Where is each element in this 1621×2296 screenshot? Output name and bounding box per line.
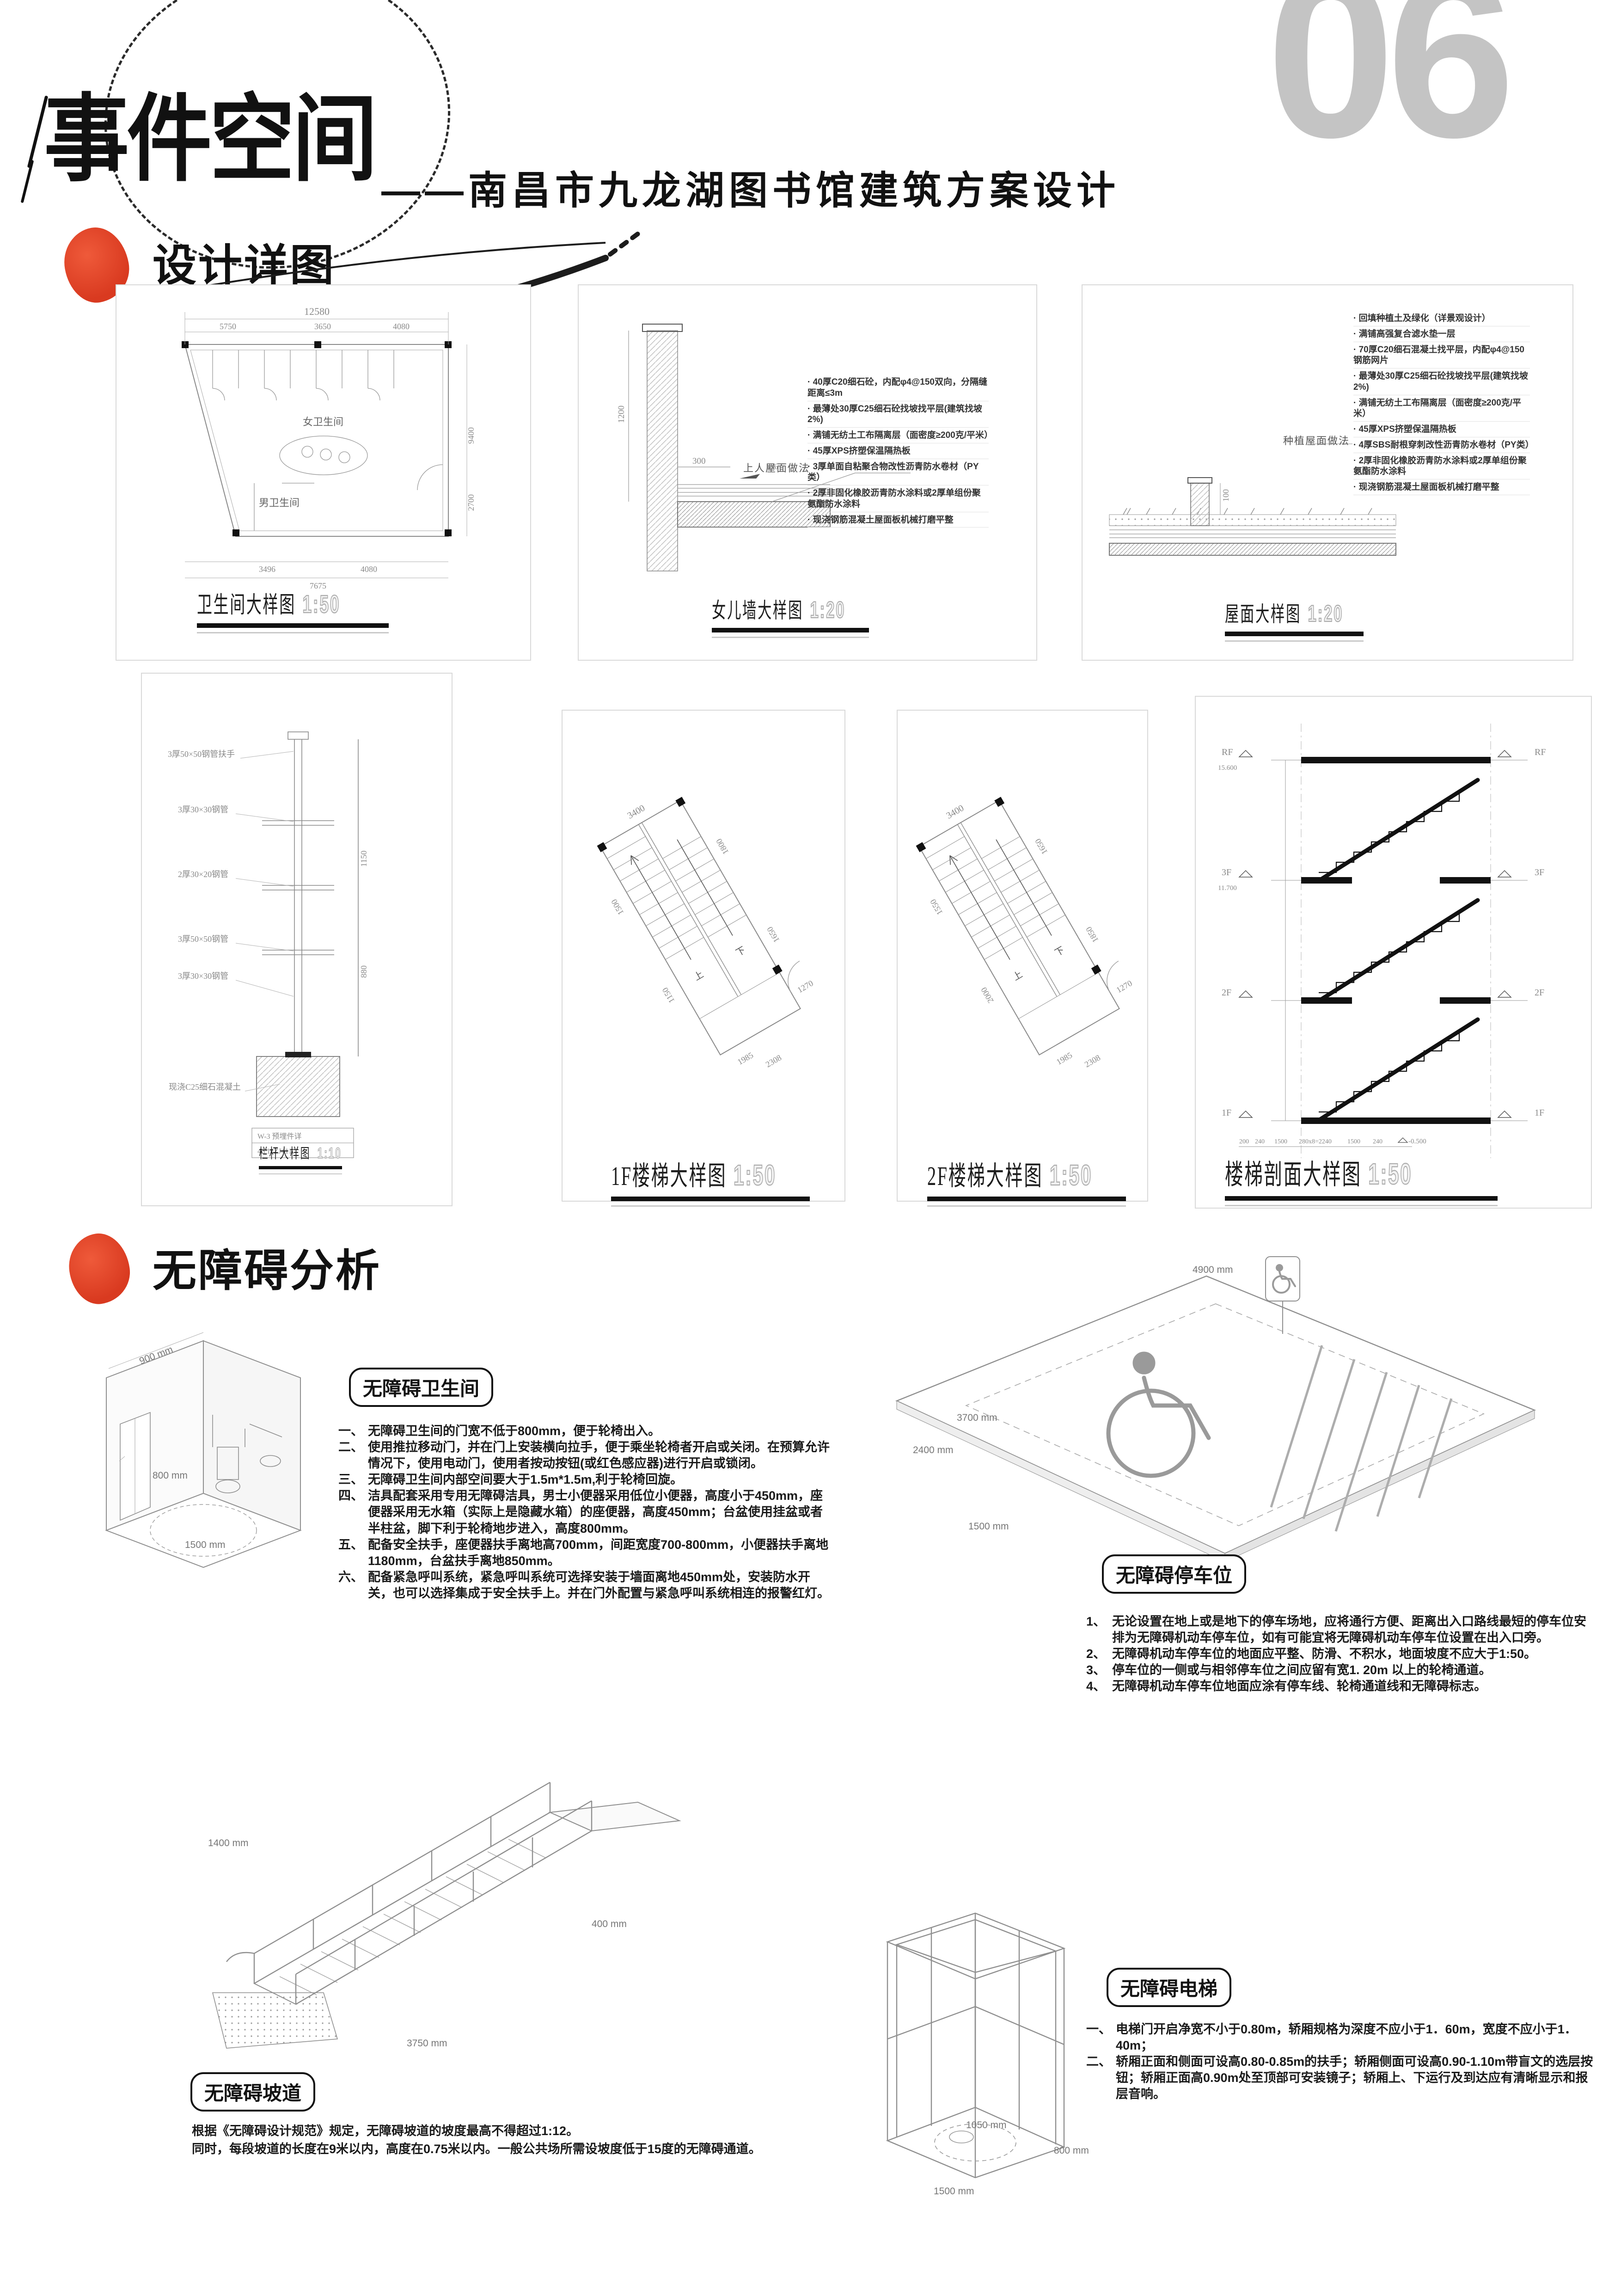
svg-text:RF: RF: [1222, 747, 1233, 757]
accessible-parking-list: 1、 无论设置在地上或是地下的停车场地，应将通行方便、距离出入口路线最短的停车位…: [1086, 1614, 1590, 1694]
stair-section-label: 楼梯剖面大样图1:50: [1225, 1152, 1525, 1206]
badge-label: 无障碍停车位: [1116, 1565, 1232, 1586]
list-item: 六、 配备紧急呼叫系统，紧急呼叫系统可选择安装于墙面离地450mm处，安装防水开…: [338, 1569, 835, 1602]
svg-text:3650: 3650: [314, 322, 331, 331]
svg-text:1500: 1500: [1274, 1138, 1287, 1145]
accessible-elevator-list: 一、 电梯门开启净宽不小于0.80m，轿厢规格为深度不应小于1．60m，宽度不应…: [1086, 2021, 1595, 2102]
accessible-parking-badge: 无障碍停车位: [1102, 1554, 1246, 1594]
dimension-label: 1500 mm: [968, 1521, 1009, 1532]
svg-text:1650: 1650: [1033, 837, 1049, 856]
item-number: 二、: [1086, 2054, 1116, 2070]
badge-label: 无障碍电梯: [1120, 1978, 1217, 2000]
stair-2f-drawing: 3400 1550 2000 1650 1850 1985 2308 1270 …: [897, 710, 1146, 1200]
svg-text:3400: 3400: [626, 803, 647, 821]
accessible-ramp-text: 根据《无障碍设计规范》规定，无障碍坡道的坡度最高不得超过1:12。同时，每段坡道…: [192, 2122, 885, 2158]
stair-2f-label: 2F楼梯大样图1:50: [927, 1154, 1186, 1207]
section-heading-accessibility: 无障碍分析: [153, 1235, 381, 1299]
construction-note: · 回填种植土及绿化（详景观设计）: [1353, 311, 1530, 326]
item-number: 2、: [1086, 1646, 1112, 1662]
railing-detail-label: 栏杆大样图1:10: [259, 1142, 379, 1174]
svg-text:1650: 1650: [765, 925, 781, 944]
construction-note: · 45厚XPS挤塑保温隔热板: [807, 443, 989, 459]
item-text: 无障碍卫生间内部空间要大于1.5m*1.5m,利于轮椅回旋。: [368, 1472, 835, 1488]
item-number: 四、: [338, 1488, 368, 1504]
dimension-label: 800 mm: [153, 1470, 188, 1481]
svg-text:1200: 1200: [617, 405, 626, 423]
parapet-notes: · 40厚C20细石砼，内配φ4@150双向，分隔缝距离≤3m· 最薄处30厚C…: [807, 374, 989, 528]
item-text: 轿厢正面和侧面可设高0.80-0.85m的扶手；轿厢侧面可设高0.90-1.10…: [1116, 2054, 1595, 2102]
label-rule: [611, 1205, 810, 1207]
item-text: 电梯门开启净宽不小于0.80m，轿厢规格为深度不应小于1．60m，宽度不应小于1…: [1116, 2021, 1595, 2054]
accessible-parking-isometric: [855, 1248, 1576, 1600]
accessible-ramp-badge: 无障碍坡道: [190, 2072, 315, 2112]
svg-text:1270: 1270: [1115, 978, 1134, 995]
label-rule: [259, 1166, 342, 1169]
dimension-label: 1400 mm: [208, 1838, 249, 1849]
list-item: 五、 配备安全扶手，座便器扶手离地高700mm，间距宽度700-800mm，小便…: [338, 1537, 835, 1569]
list-item: 1、 无论设置在地上或是地下的停车场地，应将通行方便、距离出入口路线最短的停车位…: [1086, 1614, 1590, 1646]
svg-text:1500: 1500: [1347, 1138, 1360, 1145]
poster-title: 事件空间: [44, 62, 375, 200]
item-number: 五、: [338, 1537, 368, 1553]
svg-text:240: 240: [1255, 1138, 1265, 1145]
dimension-label: 800 mm: [1054, 2145, 1089, 2156]
svg-text:11.700: 11.700: [1218, 884, 1237, 892]
svg-text:2厚30×20钢管: 2厚30×20钢管: [178, 870, 228, 879]
dimension-label: 2400 mm: [913, 1445, 954, 1456]
roof-notes: · 回填种植土及绿化（详景观设计）· 满铺高强复合滤水垫一层· 70厚C20细石…: [1353, 311, 1530, 495]
label-rule: [1225, 1205, 1498, 1206]
svg-text:4080: 4080: [393, 322, 410, 331]
svg-text:男卫生间: 男卫生间: [259, 497, 300, 509]
stair-section-drawing: RF RF 15.600 3F 3F 11.700 2F 2F 1F 1F 20…: [1195, 696, 1590, 1207]
list-item: 二、 轿厢正面和侧面可设高0.80-0.85m的扶手；轿厢侧面可设高0.90-1…: [1086, 2054, 1595, 2102]
label-rule: [259, 1173, 342, 1174]
accessible-toilet-isometric: [65, 1308, 342, 1632]
list-item: 三、 无障碍卫生间内部空间要大于1.5m*1.5m,利于轮椅回旋。: [338, 1472, 835, 1488]
label-rule: [927, 1197, 1126, 1201]
dimension-label: 1500 mm: [185, 1540, 226, 1551]
construction-note: · 满铺无纺土工布隔离层（面密度≥200克/平米）: [1353, 395, 1530, 422]
roof-detail-label: 屋面大样图1:20: [1225, 597, 1419, 642]
badge-label: 无障碍卫生间: [363, 1378, 479, 1400]
dimension-label: 3700 mm: [957, 1412, 997, 1424]
dimension-label: 400 mm: [592, 1919, 627, 1930]
svg-text:280x8=2240: 280x8=2240: [1299, 1138, 1332, 1145]
item-text: 无障碍机动车停车位的地面应平整、防滑、不积水，地面坡度不应大于1:50。: [1112, 1646, 1590, 1662]
label-rule: [611, 1197, 810, 1201]
svg-text:2F: 2F: [1222, 988, 1231, 998]
construction-note: · 最薄处30厚C25细石砼找坡找平层(建筑找坡2%): [807, 401, 989, 428]
svg-text:3496: 3496: [259, 565, 275, 574]
accessible-elevator-isometric: [823, 1900, 1119, 2270]
label-rule: [1225, 640, 1364, 642]
svg-text:1985: 1985: [736, 1050, 755, 1067]
list-item: 4、 无障碍机动车停车位地面应涂有停车线、轮椅通道线和无障碍标志。: [1086, 1678, 1590, 1694]
item-text: 停车位的一侧或与相邻停车位之间应留有宽1. 20m 以上的轮椅通道。: [1112, 1662, 1590, 1678]
label-rule: [1225, 1196, 1498, 1201]
svg-text:12580: 12580: [304, 306, 330, 317]
label-rule: [1225, 632, 1364, 636]
svg-text:100: 100: [1221, 489, 1230, 502]
construction-note: · 2厚非固化橡胶沥青防水涂料或2厚单组份聚氨酯防水涂料: [807, 485, 989, 512]
accessible-toilet-list: 一、 无障碍卫生间的门宽不低于800mm，便于轮椅出入。 二、 使用推拉移动门，…: [338, 1423, 835, 1602]
construction-note: · 满铺高强复合滤水垫一层: [1353, 326, 1530, 342]
svg-text:2F: 2F: [1535, 988, 1544, 998]
paragraph-line: 根据《无障碍设计规范》规定，无障碍坡道的坡度最高不得超过1:12。: [192, 2122, 885, 2140]
svg-text:240: 240: [1373, 1138, 1382, 1145]
svg-text:2700: 2700: [466, 494, 476, 511]
construction-note: · 4厚SBS耐根穿刺改性沥青防水卷材（PY类）: [1353, 437, 1530, 453]
svg-text:5750: 5750: [220, 322, 236, 331]
paragraph-line: 同时，每段坡道的长度在9米以内，高度在0.75米以内。一般公共场所需设坡度低于1…: [192, 2140, 885, 2158]
svg-text:上: 上: [692, 969, 705, 983]
item-text: 无障碍卫生间的门宽不低于800mm，便于轮椅出入。: [368, 1423, 835, 1439]
svg-text:RF: RF: [1535, 747, 1546, 757]
svg-text:3400: 3400: [945, 803, 966, 821]
list-item: 二、 使用推拉移动门，并在门上安装横向拉手，便于乘坐轮椅者开启或关闭。在预算允许…: [338, 1439, 835, 1472]
list-item: 四、 洁具配套采用专用无障碍洁具，男士小便器采用低位小便器，高度小于450mm，…: [338, 1488, 835, 1536]
item-number: 3、: [1086, 1662, 1112, 1678]
item-text: 使用推拉移动门，并在门上安装横向拉手，便于乘坐轮椅者开启或关闭。在预算允许情况下…: [368, 1439, 835, 1472]
item-number: 一、: [338, 1423, 368, 1439]
svg-text:3F: 3F: [1222, 867, 1231, 878]
construction-note: · 3厚单面自粘聚合物改性沥青防水卷材（PY类）: [807, 459, 989, 486]
svg-text:现浇C25细石混凝土: 现浇C25细石混凝土: [169, 1082, 241, 1092]
svg-text:880: 880: [359, 965, 368, 978]
accessible-ramp-isometric: [185, 1743, 716, 2067]
construction-note: · 70厚C20细石混凝土找平层，内配φ4@150钢筋网片: [1353, 342, 1530, 369]
badge-label: 无障碍坡道: [204, 2082, 301, 2104]
svg-text:上: 上: [1011, 969, 1024, 983]
construction-note: · 现浇钢筋混凝土屋面板机械打磨平整: [807, 512, 989, 528]
construction-note: · 40厚C20细石砼，内配φ4@150双向，分隔缝距离≤3m: [807, 374, 989, 401]
item-text: 配备安全扶手，座便器扶手离地高700mm，间距宽度700-800mm，小便器扶手…: [368, 1537, 835, 1569]
construction-note: · 45厚XPS挤塑保温隔热板: [1353, 422, 1530, 437]
parapet-detail-label: 女儿墙大样图1:20: [712, 594, 934, 638]
item-number: 六、: [338, 1569, 368, 1585]
roof-callout: 种植屋面做法: [1283, 433, 1350, 448]
svg-text:1F: 1F: [1222, 1108, 1231, 1118]
label-rule: [712, 628, 869, 632]
svg-text:1800: 1800: [714, 837, 730, 856]
svg-text:1985: 1985: [1055, 1050, 1074, 1067]
svg-text:3F: 3F: [1535, 867, 1544, 878]
svg-text:下: 下: [734, 945, 747, 958]
list-item: 3、 停车位的一侧或与相邻停车位之间应留有宽1. 20m 以上的轮椅通道。: [1086, 1662, 1590, 1678]
label-rule: [927, 1205, 1126, 1207]
svg-text:3厚50×50钢管扶手: 3厚50×50钢管扶手: [168, 749, 235, 759]
svg-text:下: 下: [1053, 945, 1066, 958]
svg-text:3厚30×30钢管: 3厚30×30钢管: [178, 805, 228, 814]
label-rule: [197, 623, 389, 628]
construction-note: · 现浇钢筋混凝土屋面板机械打磨平整: [1353, 479, 1530, 495]
svg-text:3厚50×50钢管: 3厚50×50钢管: [178, 934, 228, 944]
dimension-label: 3750 mm: [407, 2038, 447, 2049]
svg-text:3厚30×30钢管: 3厚30×30钢管: [178, 971, 228, 981]
svg-text:9400: 9400: [466, 427, 476, 444]
svg-text:W-3 预埋件详: W-3 预埋件详: [257, 1132, 302, 1141]
svg-text:2308: 2308: [1083, 1053, 1102, 1069]
label-rule: [197, 632, 389, 633]
item-text: 洁具配套采用专用无障碍洁具，男士小便器采用低位小便器，高度小于450mm，座便器…: [368, 1488, 835, 1536]
red-seal-icon: [65, 1230, 134, 1308]
svg-text:女卫生间: 女卫生间: [303, 416, 343, 428]
construction-note: · 最薄处30厚C25细石砼找坡找平层(建筑找坡2%): [1353, 368, 1530, 395]
accessible-elevator-badge: 无障碍电梯: [1107, 1968, 1231, 2007]
parapet-callout: 上人屋面做法: [743, 460, 810, 475]
svg-text:1150: 1150: [660, 986, 676, 1005]
item-number: 4、: [1086, 1678, 1112, 1694]
svg-text:2000: 2000: [979, 986, 995, 1005]
item-number: 一、: [1086, 2021, 1116, 2038]
item-text: 无障碍机动车停车位地面应涂有停车线、轮椅通道线和无障碍标志。: [1112, 1678, 1590, 1694]
stair-1f-label: 1F楼梯大样图1:50: [611, 1154, 870, 1207]
item-number: 二、: [338, 1439, 368, 1455]
dimension-label: 4900 mm: [1193, 1265, 1233, 1276]
svg-text:15.600: 15.600: [1218, 764, 1237, 772]
dimension-label: 1050 mm: [966, 2120, 1007, 2131]
svg-text:4080: 4080: [361, 565, 377, 574]
svg-text:300: 300: [692, 456, 706, 466]
item-number: 三、: [338, 1472, 368, 1488]
svg-text:200: 200: [1239, 1138, 1249, 1145]
poster-page: 06 事件空间 ——南昌市九龙湖图书馆建筑方案设计 设计详图: [0, 0, 1621, 2296]
page-number: 06: [1266, 0, 1507, 172]
svg-text:2308: 2308: [764, 1053, 783, 1069]
accessible-toilet-badge: 无障碍卫生间: [349, 1368, 493, 1407]
item-number: 1、: [1086, 1614, 1112, 1630]
list-item: 一、 电梯门开启净宽不小于0.80m，轿厢规格为深度不应小于1．60m，宽度不应…: [1086, 2021, 1595, 2054]
railing-detail-drawing: 3厚50×50钢管扶手 3厚30×30钢管 2厚30×20钢管 3厚50×50钢…: [141, 673, 451, 1204]
construction-note: · 2厚非固化橡胶沥青防水涂料或2厚单组份聚氨酯防水涂料: [1353, 453, 1530, 480]
svg-text:1500: 1500: [609, 897, 625, 916]
svg-text:1850: 1850: [1084, 925, 1100, 944]
svg-text:1550: 1550: [928, 897, 944, 916]
item-text: 无论设置在地上或是地下的停车场地，应将通行方便、距离出入口路线最短的停车位安排为…: [1112, 1614, 1590, 1646]
svg-text:-0.500: -0.500: [1408, 1138, 1426, 1145]
svg-text:1150: 1150: [359, 851, 368, 867]
list-item: 一、 无障碍卫生间的门宽不低于800mm，便于轮椅出入。: [338, 1423, 835, 1439]
item-text: 配备紧急呼叫系统，紧急呼叫系统可选择安装于墙面离地450mm处，安装防水开关，也…: [368, 1569, 835, 1602]
svg-text:1F: 1F: [1535, 1108, 1544, 1118]
stair-1f-drawing: 3400 1500 1150 1800 1650 1985 2308 1270 …: [562, 710, 844, 1200]
list-item: 2、 无障碍机动车停车位的地面应平整、防滑、不积水，地面坡度不应大于1:50。: [1086, 1646, 1590, 1662]
toilet-plan-label: 卫生间大样图1:50: [197, 586, 456, 633]
svg-text:1270: 1270: [796, 978, 815, 995]
label-rule: [712, 637, 869, 638]
construction-note: · 满铺无纺土工布隔离层（面密度≥200克/平米）: [807, 428, 989, 443]
dimension-label: 1500 mm: [934, 2186, 974, 2197]
